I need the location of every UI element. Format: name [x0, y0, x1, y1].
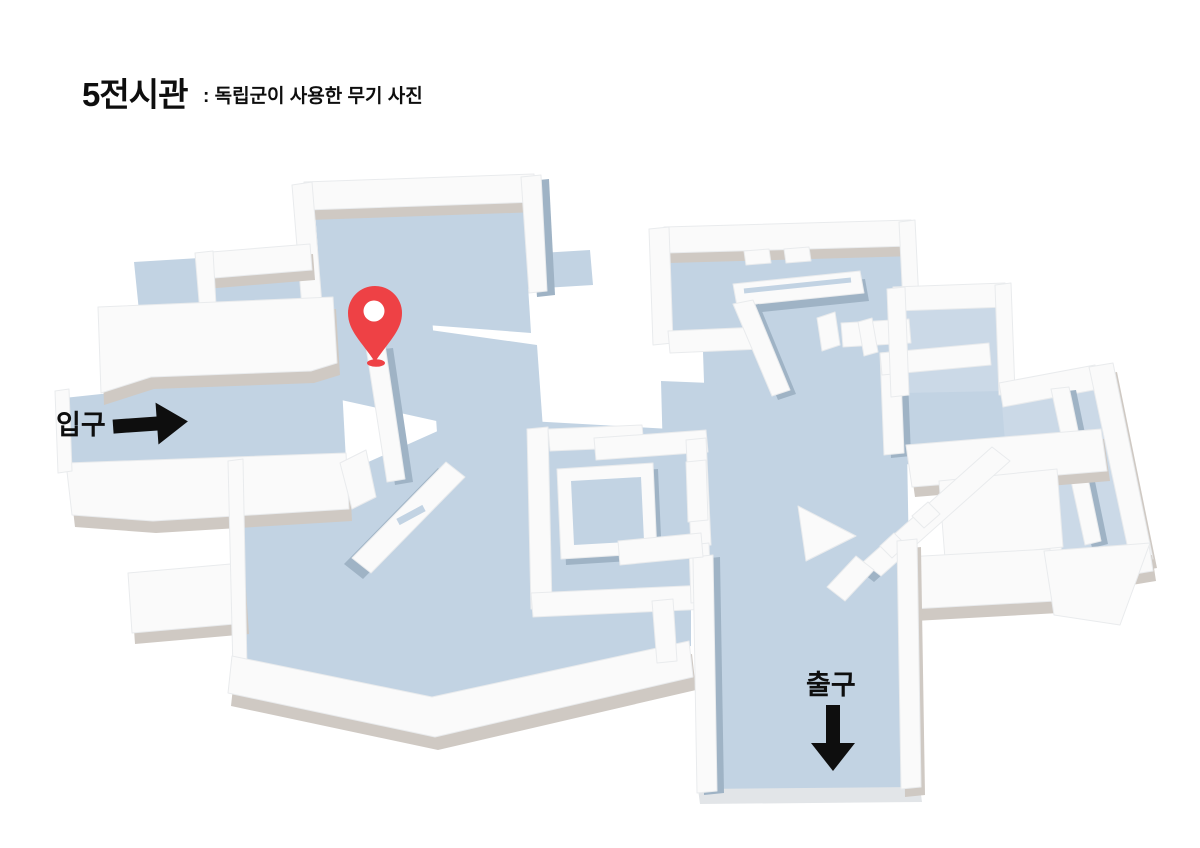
- wall: [128, 563, 246, 633]
- wall: [1044, 543, 1150, 625]
- floor-front-edge: [698, 787, 922, 804]
- walls: [55, 174, 1157, 797]
- arrow-shaft: [826, 705, 840, 749]
- page-title: 5전시관: [82, 76, 188, 113]
- inner-room-floor: [571, 477, 644, 545]
- exhibit-map-page: 입구 출구 5전시관 : 독립군이 사용한 무기 사진: [0, 0, 1200, 848]
- wall: [897, 539, 921, 789]
- wall: [995, 283, 1015, 395]
- page-subtitle: : 독립군이 사용한 무기 사진: [203, 85, 423, 107]
- wall: [784, 247, 811, 263]
- pin-hole: [364, 301, 385, 322]
- wall: [649, 227, 673, 345]
- entrance-label: 입구: [56, 410, 106, 440]
- wall: [887, 287, 909, 397]
- exhibit-map-figure: 입구 출구 5전시관 : 독립군이 사용한 무기 사진: [0, 0, 1200, 848]
- wall: [686, 460, 708, 522]
- wall: [905, 549, 1056, 609]
- header: 5전시관 : 독립군이 사용한 무기 사진: [82, 76, 423, 113]
- wall: [893, 283, 1007, 311]
- wall: [66, 453, 349, 521]
- wall: [527, 427, 552, 609]
- exit-label: 출구: [806, 670, 856, 700]
- wall: [744, 249, 771, 265]
- wall: [652, 599, 677, 663]
- wall: [693, 555, 717, 793]
